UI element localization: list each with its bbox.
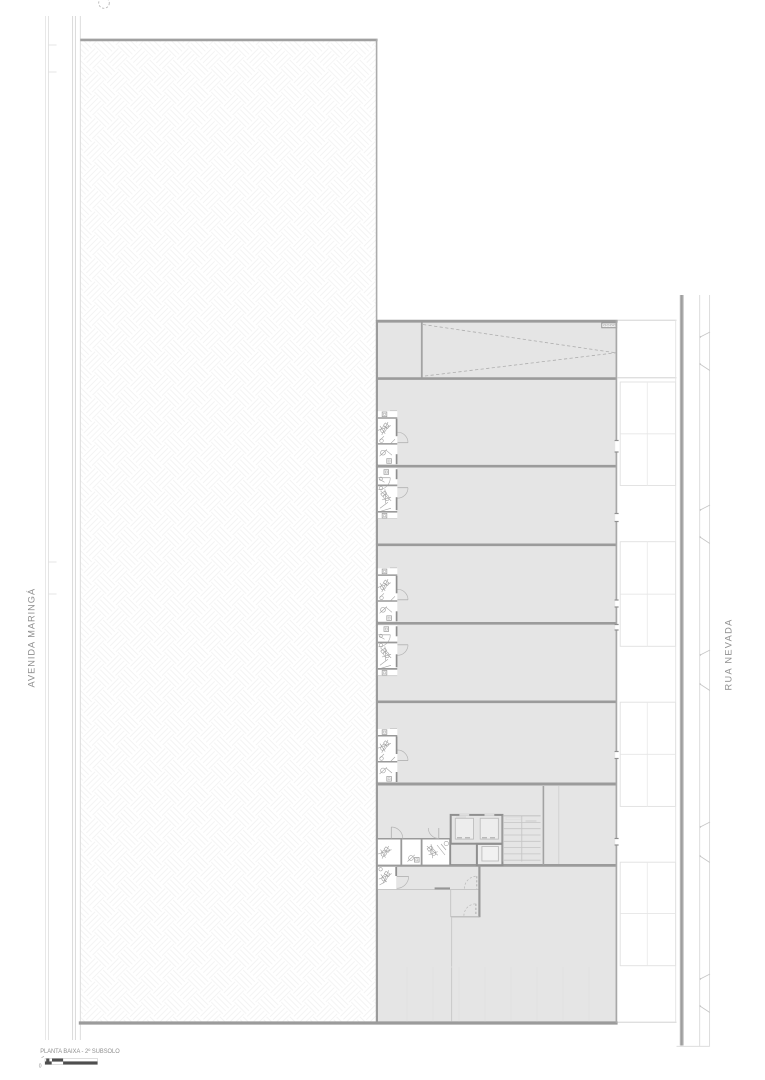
svg-text:RUA NEVADA: RUA NEVADA bbox=[724, 618, 734, 690]
svg-text:PLANTA BAIXA - 2º SUBSOLO: PLANTA BAIXA - 2º SUBSOLO bbox=[40, 1048, 120, 1055]
svg-text:0: 0 bbox=[39, 1064, 42, 1070]
svg-text:AVENIDA MARINGÁ: AVENIDA MARINGÁ bbox=[26, 588, 36, 688]
